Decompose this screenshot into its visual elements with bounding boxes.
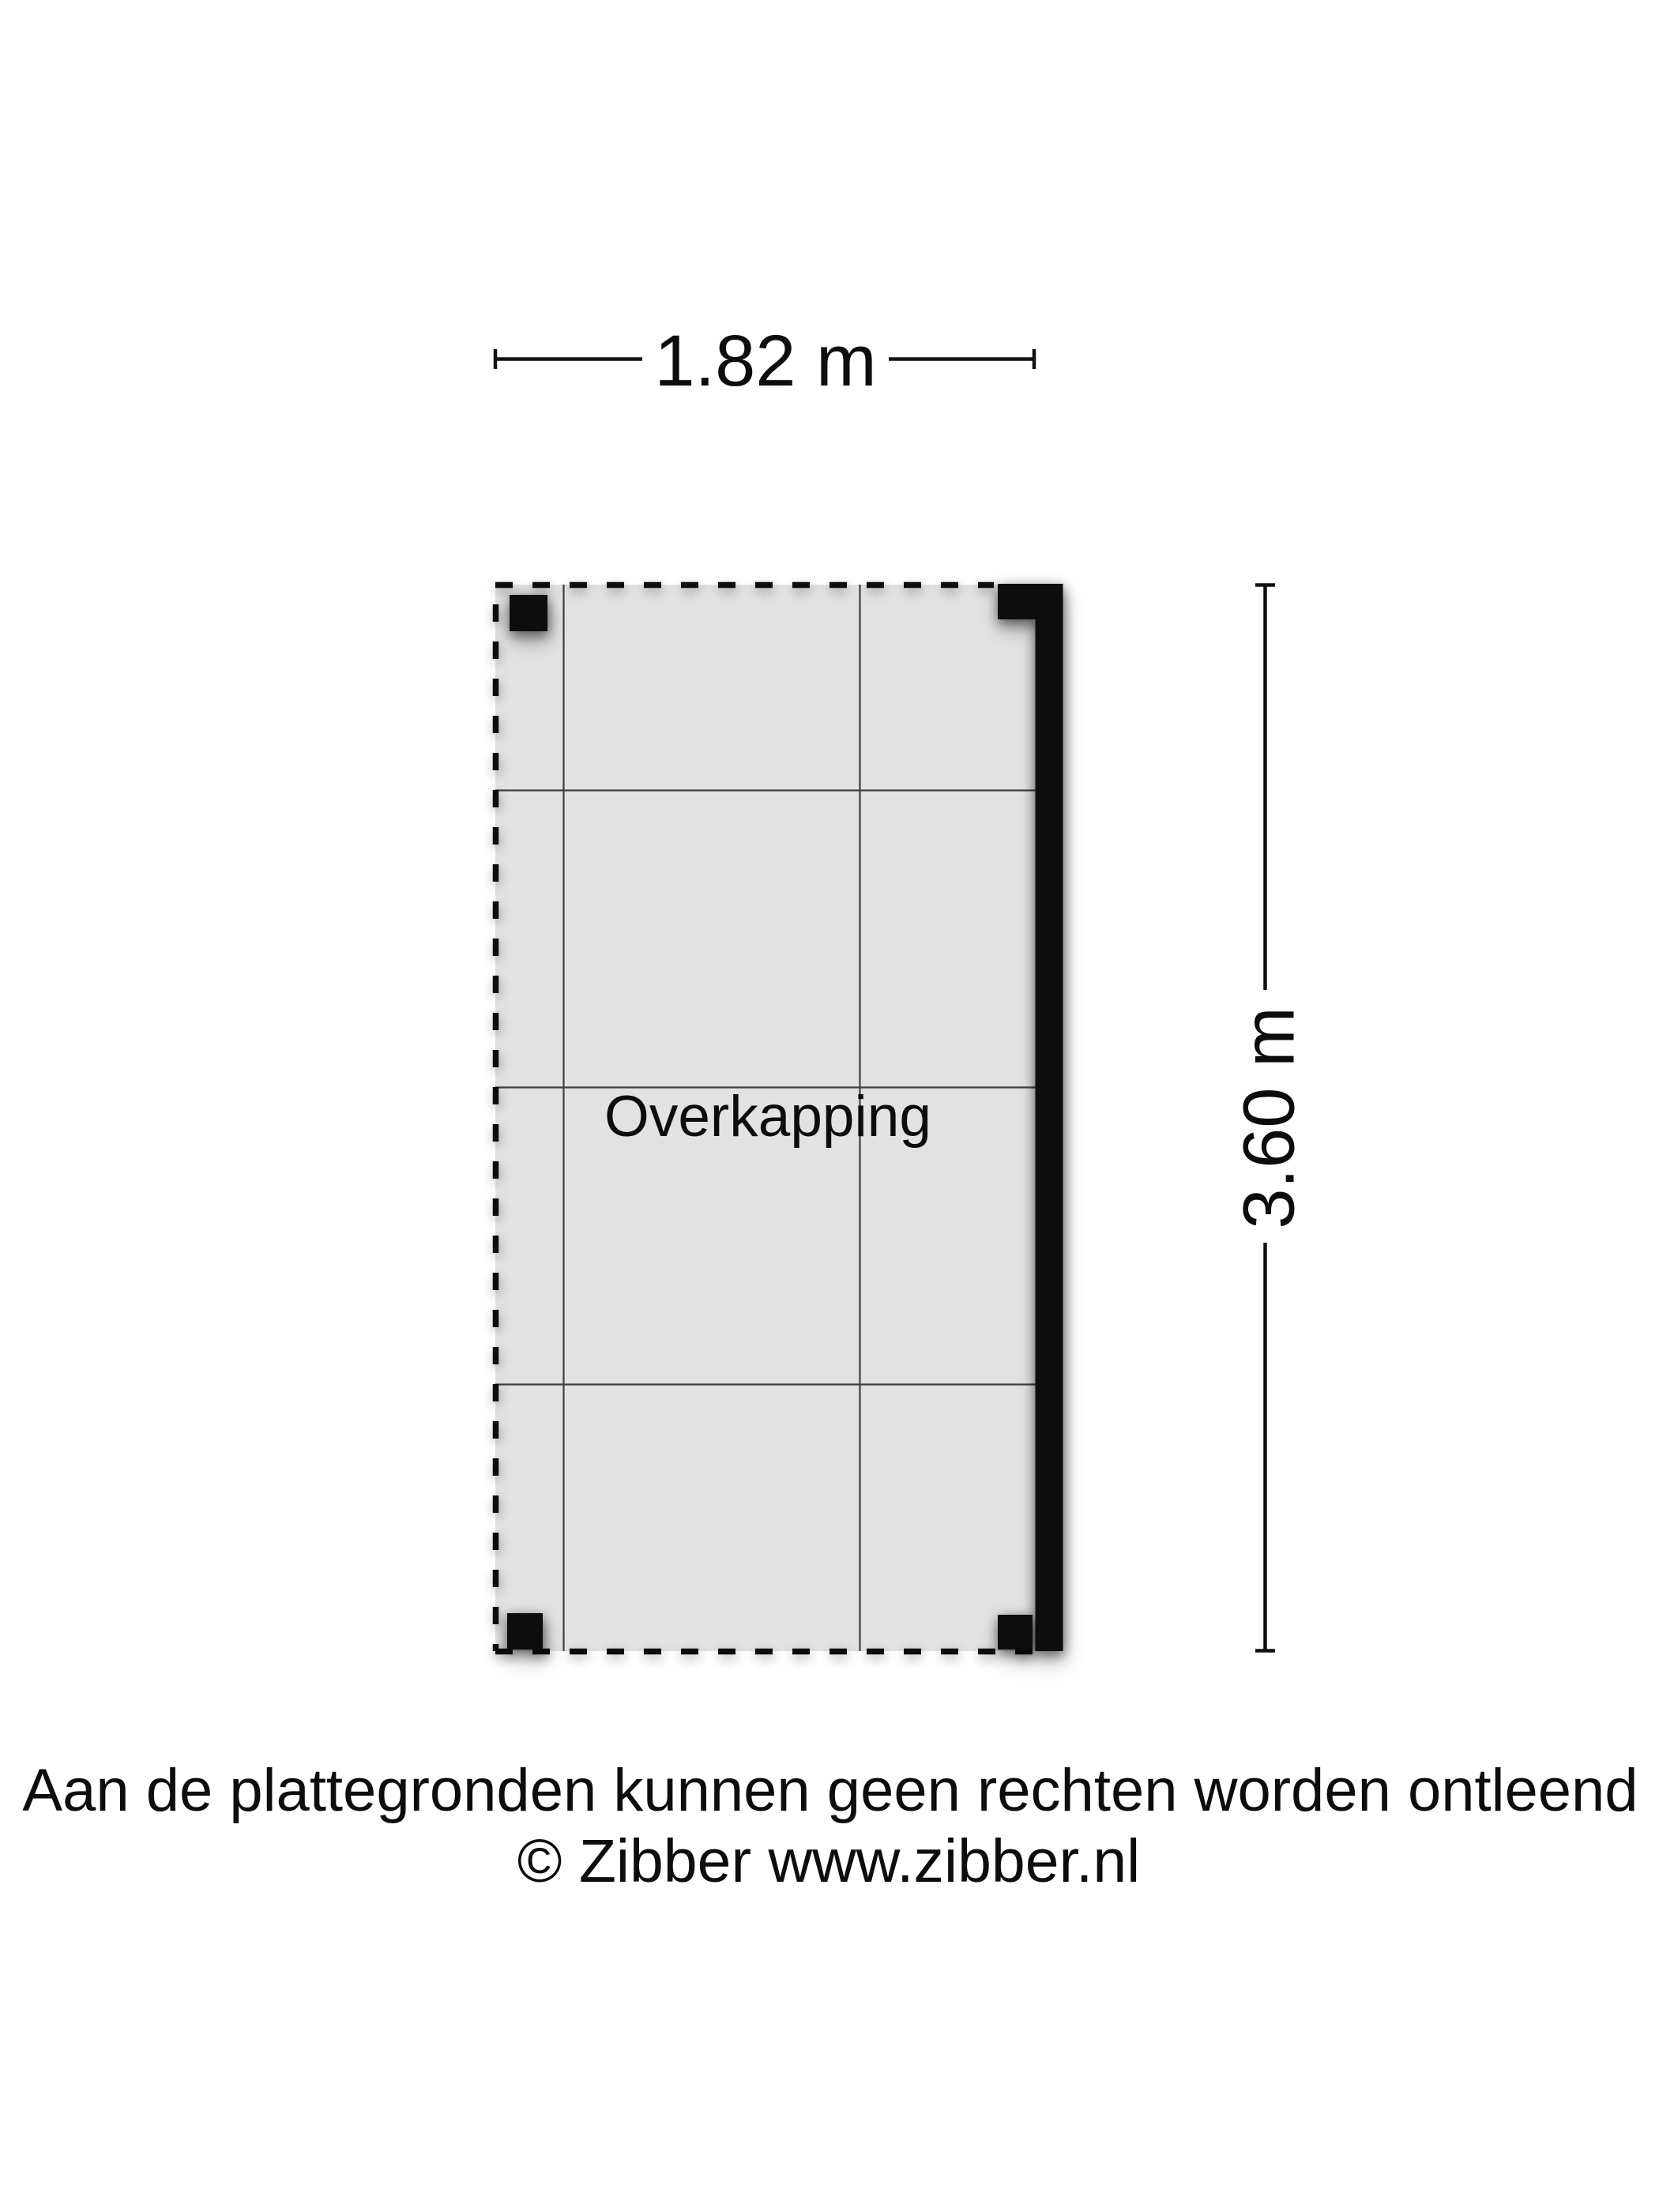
svg-text:© Zibber www.zibber.nl: © Zibber www.zibber.nl: [517, 1827, 1141, 1895]
svg-text:Aan de plattegronden kunnen ge: Aan de plattegronden kunnen geen rechten…: [22, 1757, 1638, 1824]
svg-text:Overkapping: Overkapping: [604, 1085, 931, 1149]
svg-text:1.82 m: 1.82 m: [654, 321, 876, 401]
svg-text:3.60 m: 3.60 m: [1229, 1006, 1310, 1228]
